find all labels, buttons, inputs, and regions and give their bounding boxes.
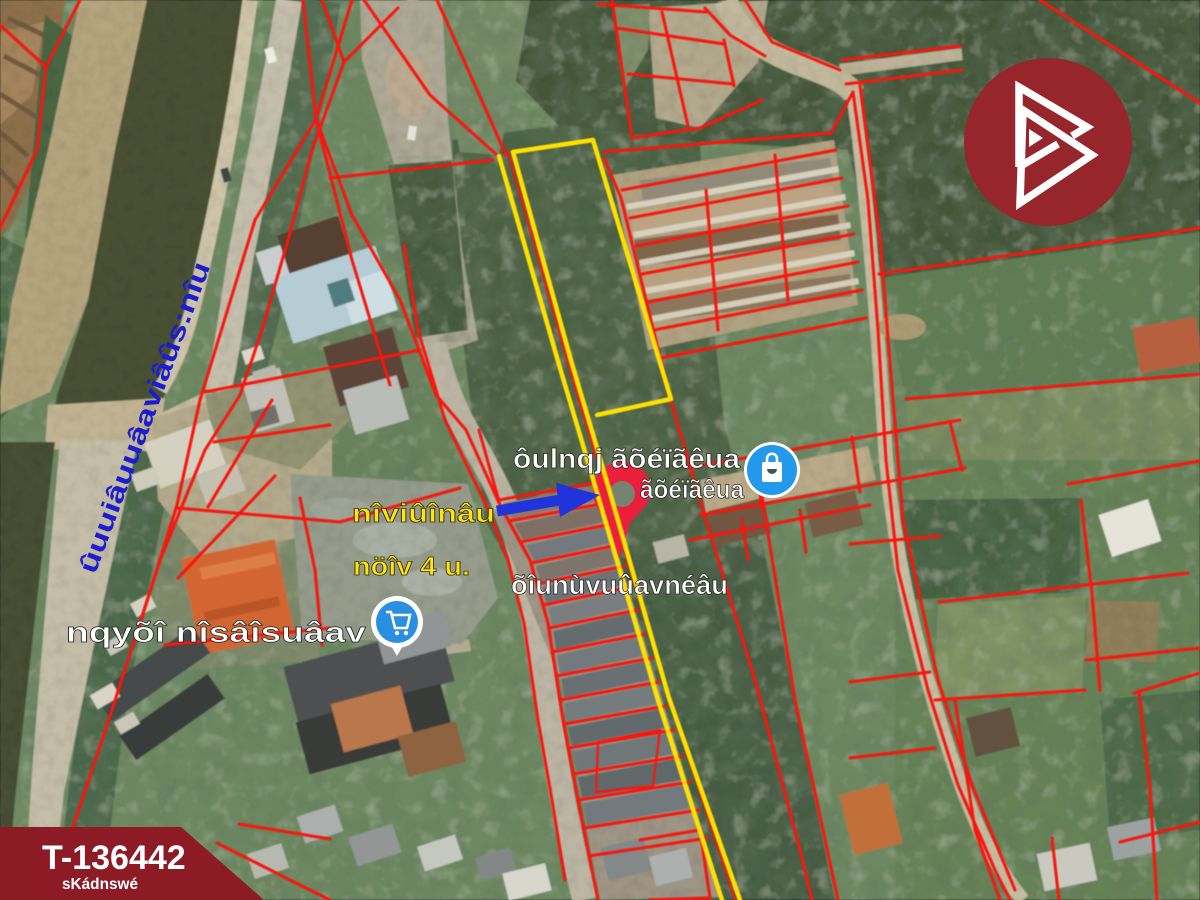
svg-text:nöîv 4 u.: nöîv 4 u.	[353, 551, 470, 581]
svg-text:sKádnswé: sKádnswé	[62, 876, 138, 893]
svg-text:nqyõî nîsâîsuâav: nqyõî nîsâîsuâav	[66, 617, 366, 649]
svg-text:T-136442: T-136442	[42, 839, 186, 877]
svg-text:nîviûînâu: nîviûînâu	[352, 498, 495, 528]
svg-text:ãõéïãêua: ãõéïãêua	[640, 474, 744, 504]
svg-text:õîunùvuûavnéâu: õîunùvuûavnéâu	[511, 570, 728, 600]
svg-text:ôulnqj ãõéïãêua: ôulnqj ãõéïãêua	[513, 443, 740, 474]
